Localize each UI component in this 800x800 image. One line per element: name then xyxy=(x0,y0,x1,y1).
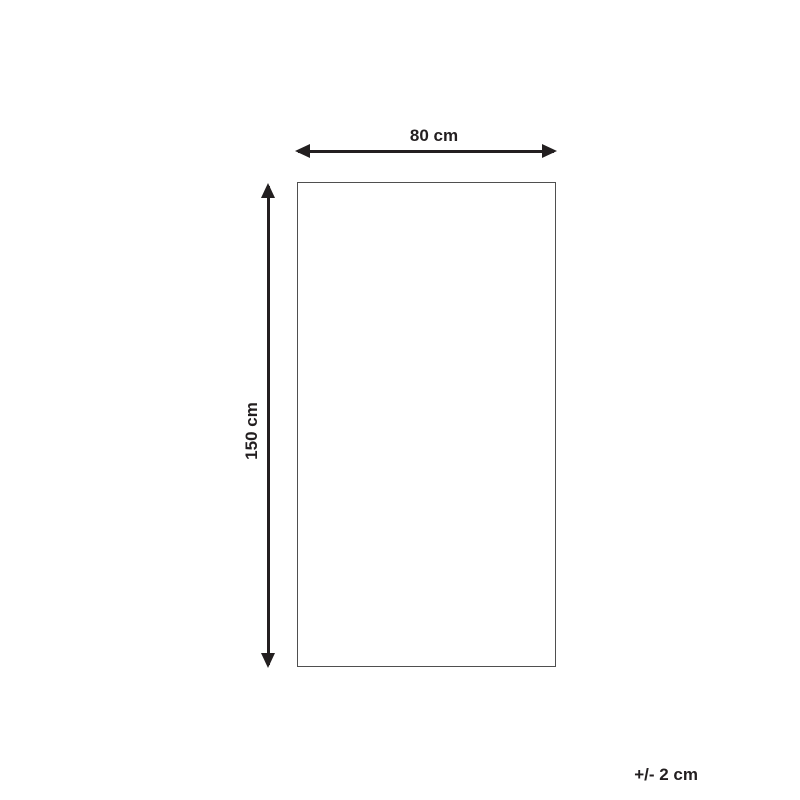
arrowhead-right-icon xyxy=(542,144,557,158)
tolerance-label: +/- 2 cm xyxy=(634,765,698,785)
dimension-diagram: 80 cm 150 cm +/- 2 cm xyxy=(0,0,800,800)
arrowhead-down-icon xyxy=(261,653,275,668)
product-outline-rect xyxy=(297,182,556,667)
width-dimension-label: 80 cm xyxy=(303,126,565,146)
height-dimension-label: 150 cm xyxy=(242,371,262,491)
width-arrow-shaft xyxy=(298,150,554,153)
height-arrow-shaft xyxy=(267,186,270,665)
width-dimension-arrow xyxy=(295,144,557,158)
height-dimension-arrow xyxy=(261,183,275,668)
